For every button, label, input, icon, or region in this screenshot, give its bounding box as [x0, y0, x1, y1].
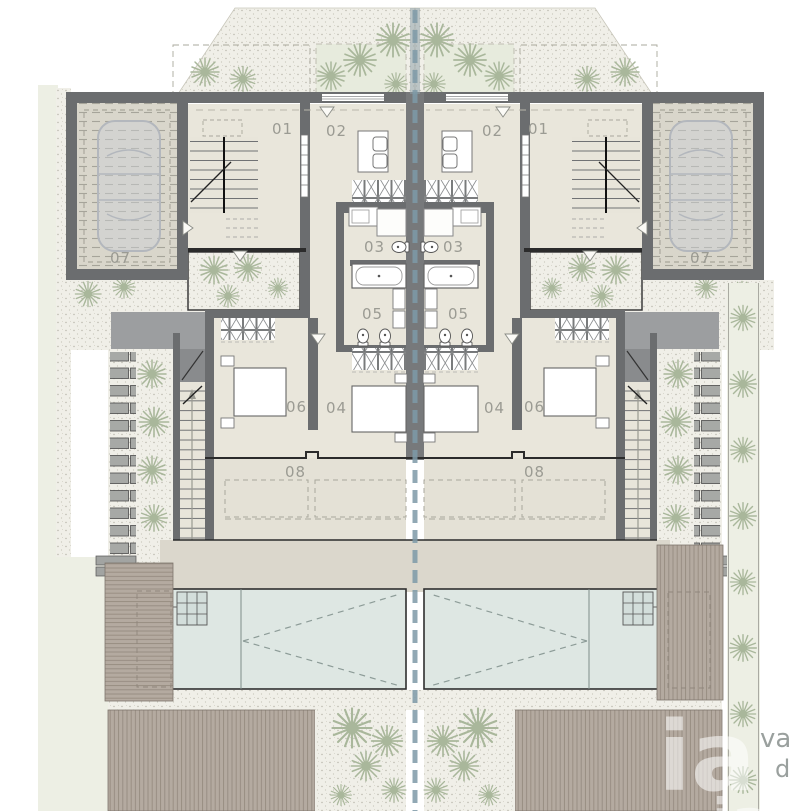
room-label-05-left: 05: [362, 305, 383, 323]
room-label-04-right: 04: [484, 399, 505, 417]
room-label-06-right: 06: [524, 398, 545, 416]
watermark: iad iad va da: [658, 701, 790, 811]
watermark-fragment-va: va: [760, 724, 790, 754]
room-label-04-left: 04: [326, 399, 347, 417]
room-label-07-left: 07: [110, 249, 131, 267]
room-label-03-left: 03: [364, 238, 385, 256]
room-label-02-left: 02: [326, 122, 347, 140]
watermark-logo-small: iad: [712, 786, 790, 811]
room-label-08-right: 08: [524, 463, 545, 481]
room-label-05-right: 05: [448, 305, 469, 323]
floor-plan: 01 01 02 02 03 03 04 04 05 05 06 06 07 0…: [0, 0, 790, 811]
room-label-02-right: 02: [482, 122, 503, 140]
deck-right: [657, 545, 723, 700]
watermark-fragment-da: da: [775, 755, 790, 783]
deck-left: [105, 563, 173, 701]
floor-plan-page: 01 01 02 02 03 03 04 04 05 05 06 06 07 0…: [0, 0, 790, 811]
room-label-01-left: 01: [272, 120, 293, 138]
room-label-06-left: 06: [286, 398, 307, 416]
lawn-block-left: [38, 557, 108, 811]
lawn-strip-left: [38, 85, 58, 557]
room-label-01-right: 01: [528, 120, 549, 138]
room-label-07-right: 07: [690, 249, 711, 267]
room-label-03-right: 03: [443, 238, 464, 256]
room-label-08-left: 08: [285, 463, 306, 481]
